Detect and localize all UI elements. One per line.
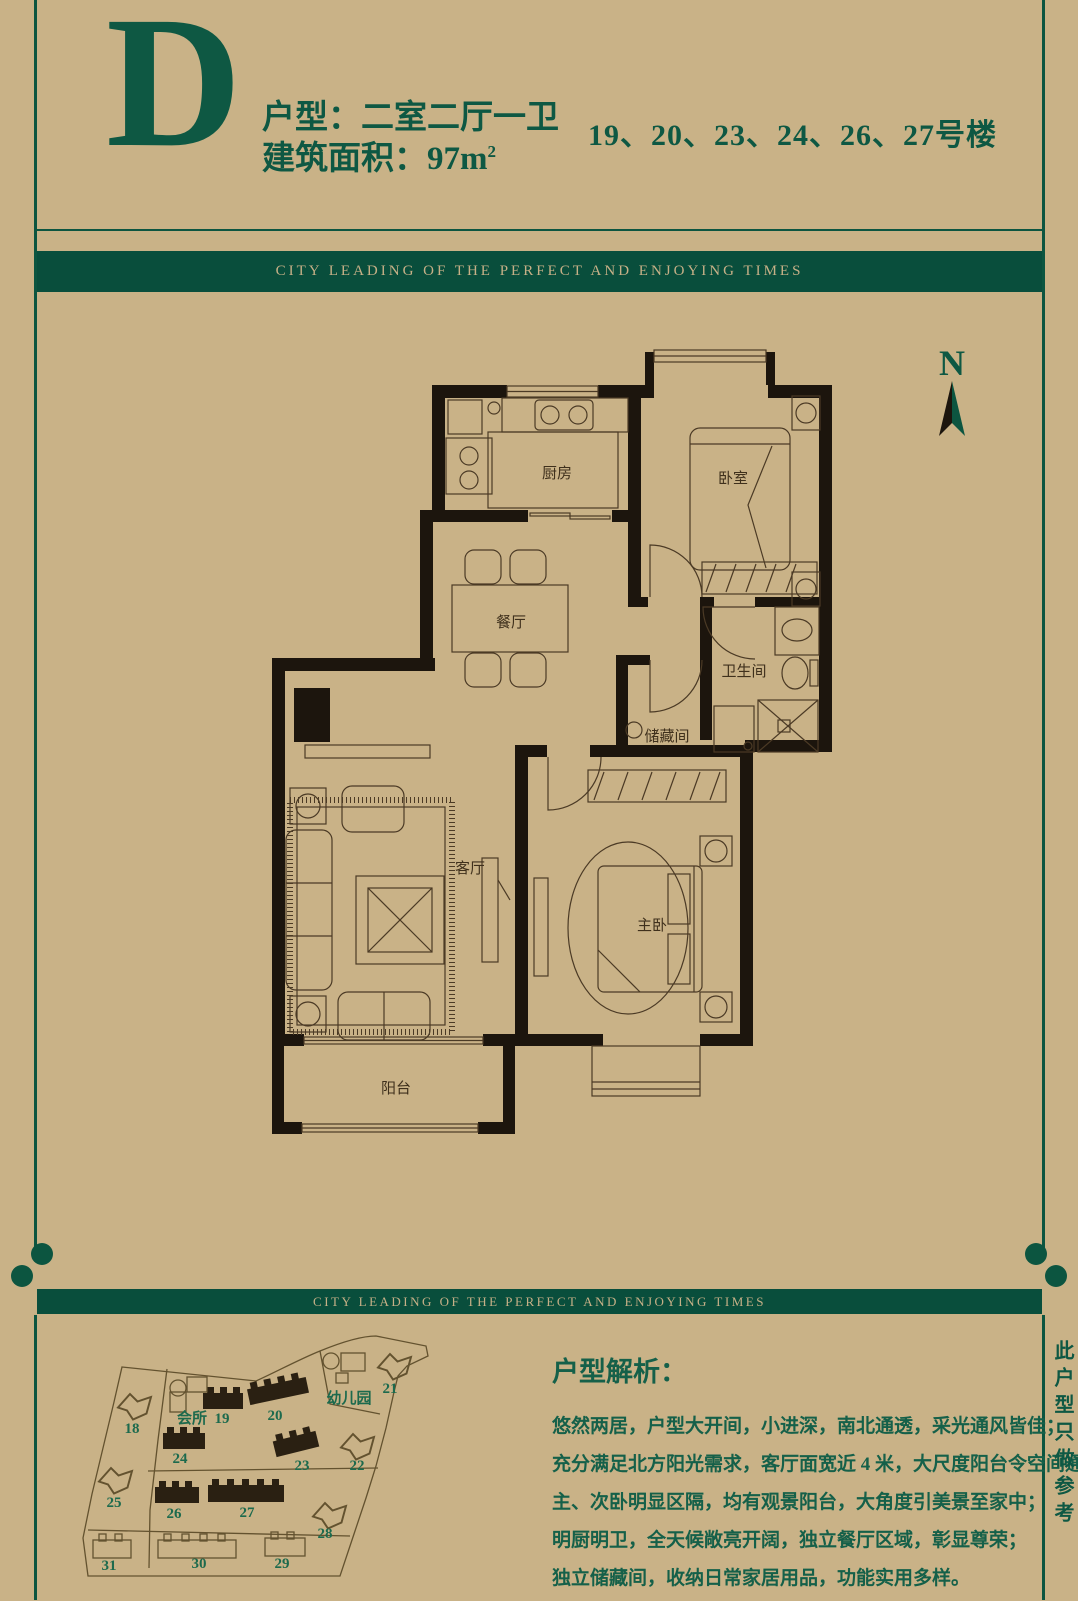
left-frame-line-top [34,0,37,1249]
room-label-bath: 卫生间 [721,663,766,680]
floor-plan-windows [302,350,766,1132]
side-note: 此户型只做参考 [1048,1340,1077,1529]
floor-plan-room-labels: 厨房 卧室 餐厅 卫生间 储藏间 客厅 主卧 阳台 [381,465,767,1097]
site-label-30: 30 [192,1556,207,1572]
north-arrow-right-half [952,381,965,436]
left-dot-2 [11,1265,33,1287]
site-label-18: 18 [125,1421,140,1437]
right-frame-line-top [1042,0,1045,1249]
room-label-kitchen: 厨房 [542,465,572,482]
poster-page: { "page": { "banner_text": "CITY LEADING… [0,0,1078,1600]
site-plan-labels: 18 19 20 21 22 23 24 25 26 27 28 29 30 3… [102,1381,398,1574]
bottom-banner: CITY LEADING OF THE PERFECT AND ENJOYING… [37,1289,1042,1314]
site-label-26: 26 [167,1506,183,1522]
analysis-block: 户型解析： 悠然两居，户型大开间，小进深，南北通透，采光通风皆佳； 充分满足北方… [552,1350,1022,1601]
site-label-27: 27 [240,1505,256,1521]
room-label-master: 主卧 [637,917,667,934]
site-plan: 18 19 20 21 22 23 24 25 26 27 28 29 30 3… [60,1330,460,1600]
top-thin-rule [35,229,1043,231]
site-label-19: 19 [215,1411,230,1427]
north-arrow: N [915,335,985,445]
top-banner: CITY LEADING OF THE PERFECT AND ENJOYING… [37,251,1042,292]
site-label-22: 22 [350,1458,365,1474]
room-label-balcony: 阳台 [381,1080,411,1097]
area-value: 建筑面积：97m [262,141,488,177]
north-arrow-left-half [939,381,952,436]
unit-type-letter: D [106,0,242,176]
analysis-line: 独立储藏间，收纳日常家居用品，功能实用多样。 [552,1563,1022,1590]
north-label: N [939,343,965,383]
left-frame-line-bottom [34,1315,37,1600]
analysis-line: 充分满足北方阳光需求，客厅面宽近 4 米，大尺度阳台令空间通透非凡； [552,1449,1022,1476]
floor-plan: 厨房 卧室 餐厅 卫生间 储藏间 客厅 主卧 阳台 [255,330,845,1150]
site-label-31: 31 [102,1558,117,1574]
buildings-text: 19、20、23、24、26、27号楼 [588,110,997,154]
room-label-bedroom: 卧室 [718,470,748,487]
bottom-banner-text: CITY LEADING OF THE PERFECT AND ENJOYING… [313,1294,766,1310]
analysis-line: 主、次卧明显区隔，均有观景阳台，大角度引美景至家中； [552,1487,1022,1514]
site-plan-boundary [83,1336,428,1576]
site-label-21: 21 [383,1381,398,1397]
analysis-line: 明厨明卫，全天候敞亮开阔，独立餐厅区域，彰显尊荣； [552,1525,1022,1552]
site-label-25: 25 [107,1495,122,1511]
room-label-storage: 储藏间 [644,728,689,745]
analysis-line: 悠然两居，户型大开间，小进深，南北通透，采光通风皆佳； [552,1411,1022,1438]
site-label-clubhouse: 会所 [177,1409,207,1427]
left-dot-1 [31,1243,53,1265]
right-dot-1 [1025,1243,1047,1265]
site-plan-highlighted-buildings [155,1371,319,1503]
site-label-28: 28 [318,1526,333,1542]
top-banner-text: CITY LEADING OF THE PERFECT AND ENJOYING… [276,263,804,280]
room-label-dining: 餐厅 [496,614,526,631]
site-label-20: 20 [268,1408,283,1424]
right-dot-2 [1045,1265,1067,1287]
site-label-24: 24 [173,1451,189,1467]
floor-plan-furniture [286,396,820,1040]
site-label-23: 23 [295,1458,310,1474]
analysis-heading: 户型解析： [552,1350,1022,1389]
unit-area-text: 建筑面积：97m2 [262,131,496,179]
room-label-living: 客厅 [455,860,485,877]
site-label-kindergarten: 幼儿园 [326,1389,371,1407]
area-superscript: 2 [488,142,497,161]
site-label-29: 29 [275,1556,290,1572]
